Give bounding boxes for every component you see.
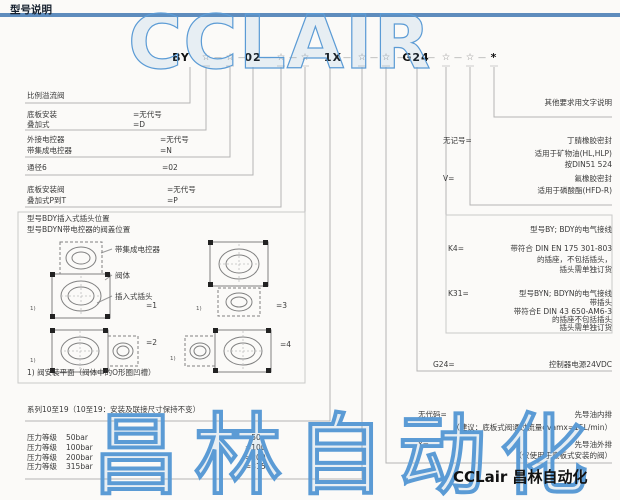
code-token: *: [477, 51, 511, 64]
electrical-title: 型号BY; BDY的电气接线: [530, 226, 612, 234]
pressure-spec: 100bar: [66, 444, 93, 452]
option-value: =02: [162, 164, 178, 172]
seal-key-none: 无记号=: [443, 137, 472, 145]
option-label: 外接电控器: [27, 136, 65, 144]
pressure-label: 压力等级: [27, 444, 57, 452]
position-value-4: =4: [280, 341, 291, 349]
callout-valve-body: 阀体: [115, 272, 130, 280]
power-key: G24=: [433, 361, 455, 369]
pilot-internal: 先导油内排: [575, 411, 613, 419]
electrical-k4-line: 的插座，不包括插头，: [537, 256, 612, 264]
pressure-label: 压力等级: [27, 454, 57, 462]
option-label: 叠加式: [27, 121, 50, 129]
footnote-ref: 1): [170, 356, 176, 362]
option-value: =无代号: [167, 186, 196, 194]
diagram-title-line2: 型号BDYN带电控器的阀盖位置: [27, 226, 130, 234]
pilot-external-note: （仅使用于底板式安装的阀）: [515, 452, 613, 460]
option-value: =D: [133, 121, 145, 129]
electrical-k31-line: 插头需单独订货: [560, 324, 613, 332]
pressure-value: =315: [245, 463, 266, 471]
callout-controller: 带集成电控器: [115, 246, 160, 254]
option-value: =N: [160, 147, 172, 155]
pressure-spec: 315bar: [66, 463, 93, 471]
pressure-spec: 200bar: [66, 454, 93, 462]
pressure-label: 压力等级: [27, 463, 57, 471]
electrical-k31-line: 带插头: [590, 299, 613, 307]
option-value: =P: [167, 197, 178, 205]
series-label: 系列10至19（10至19：安装及联接尺寸保持不变）: [27, 406, 200, 414]
power-value: 控制器电源24VDC: [549, 361, 612, 369]
pilot-internal-note: （建议：底板式阀通过流量qvamx=15L/min）: [452, 424, 612, 432]
option-label: 通径6: [27, 164, 47, 172]
code-token: BY: [164, 51, 198, 64]
electrical-k4-line: 插头需单独订货: [560, 266, 613, 274]
catalog-page: 型号说明: [0, 0, 620, 500]
brand-text: CCLair 昌林自动化: [453, 466, 587, 487]
option-label: 带集成电控器: [27, 147, 72, 155]
pressure-value: =100: [245, 444, 266, 452]
option-label: 底板安装阀: [27, 186, 65, 194]
option-value: =无代号: [133, 111, 162, 119]
pilot-external: 先导油外排: [575, 441, 613, 449]
option-label: 叠加式P到T: [27, 197, 66, 205]
electrical-key-k31: K31=: [448, 290, 469, 298]
diagram-title-line1: 型号BDY插入式插头位置: [27, 215, 110, 223]
pressure-value: =50: [245, 434, 261, 442]
diagram-footnote: 1) 阀安装平面（阀体中的O形圈凹槽）: [27, 369, 155, 377]
position-value-3: =3: [276, 302, 287, 310]
footnote-ref: 1): [30, 306, 36, 312]
seal-key-v: V=: [443, 175, 454, 183]
electrical-k31-line: 型号BYN; BDYN的电气接线: [519, 290, 612, 298]
callout-plug: 插入式插头: [115, 293, 153, 301]
pilot-key-y: Y=: [418, 441, 429, 449]
pilot-key-none: 无代码=: [418, 411, 447, 419]
electrical-key-k4: K4=: [448, 245, 464, 253]
page-title: 型号说明: [10, 2, 52, 17]
option-valve-type-label: 比例溢流阀: [27, 92, 65, 100]
pressure-label: 压力等级: [27, 434, 57, 442]
seal-nbr: 丁腈橡胶密封: [567, 137, 612, 145]
seal-fkm-use: 适用于磷酸酯(HFD-R): [538, 187, 613, 195]
option-label: 底板安装: [27, 111, 57, 119]
seal-nbr-use: 适用于矿物油(HL,HLP): [535, 150, 612, 158]
position-value-2: =2: [146, 339, 157, 347]
footnote-ref: 1): [30, 358, 36, 364]
seal-fkm: 氟橡胶密封: [575, 175, 613, 183]
electrical-k4-line: 带符合 DIN EN 175 301-803: [510, 245, 612, 253]
option-value: =无代号: [160, 136, 189, 144]
pressure-value: =200: [245, 454, 266, 462]
seal-nbr-standard: 按DIN51 524: [565, 161, 612, 169]
footnote-ref: 1): [196, 306, 202, 312]
pressure-spec: 50bar: [66, 434, 88, 442]
position-value-1: =1: [146, 302, 157, 310]
other-requirements-note: 其他要求用文字说明: [545, 99, 613, 107]
